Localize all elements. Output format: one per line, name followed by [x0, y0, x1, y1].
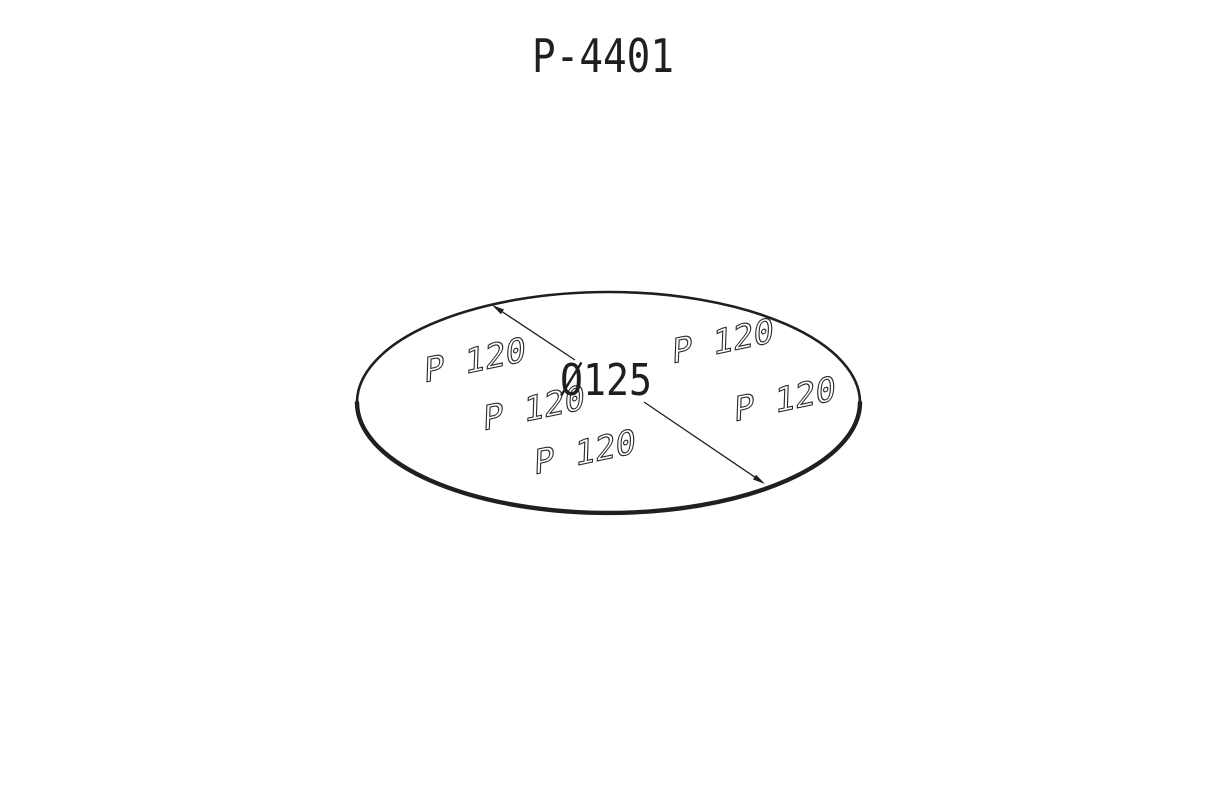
grit-label: P 120: [533, 421, 636, 482]
grit-label: P 120: [733, 368, 836, 429]
sanding-disc: P 120 P 120 P 120 P 120 P 120 Ø125: [357, 292, 860, 513]
drawing-title: P-4401: [532, 29, 674, 83]
grit-marking-right: P 120: [733, 368, 836, 429]
grit-marking-upper-right: P 120: [671, 310, 774, 371]
grit-label: P 120: [671, 310, 774, 371]
drawing-canvas: P-4401 P 120 P 120 P 120 P 120 P 120: [0, 0, 1205, 800]
technical-drawing: P-4401 P 120 P 120 P 120 P 120 P 120: [0, 0, 1205, 800]
diameter-label: Ø125: [560, 355, 652, 406]
grit-label: P 120: [423, 329, 526, 390]
dimension-arrowhead-icon: [753, 475, 765, 484]
dimension-arrowhead-icon: [492, 305, 504, 314]
grit-marking-upper-left: P 120: [423, 329, 526, 390]
grit-marking-bottom: P 120: [533, 421, 636, 482]
